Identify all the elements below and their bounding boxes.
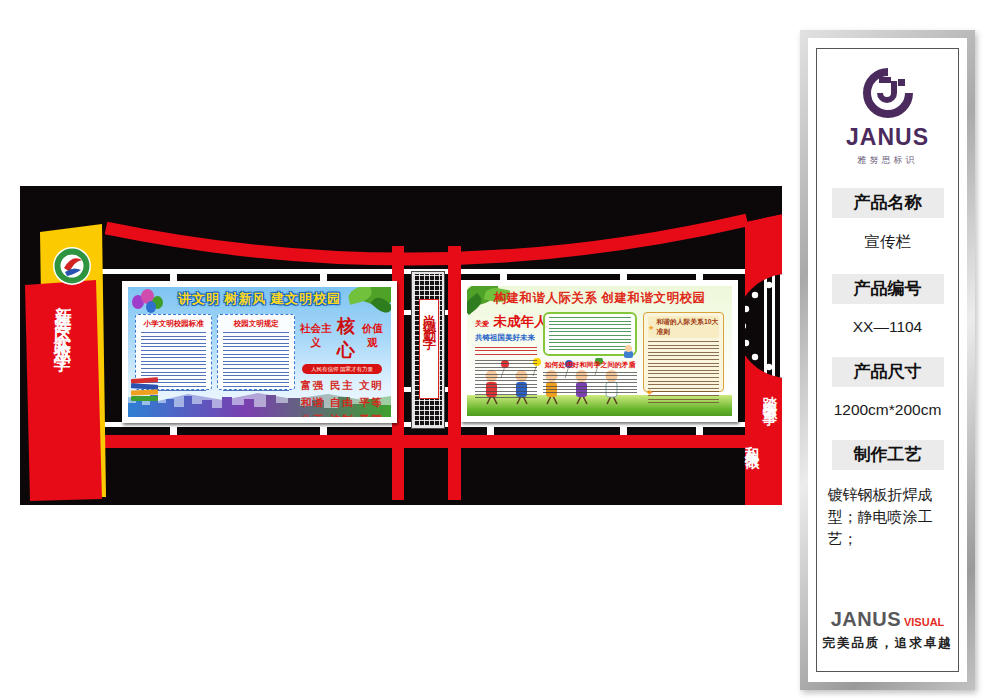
brand-tagline: 雅努思标识 <box>858 154 918 167</box>
fine-print-lines <box>475 347 537 356</box>
rules-box: ★ 和谐的人际关系10大准则 <box>643 312 724 392</box>
values-row: 和谐 自由 平等 <box>300 394 384 411</box>
star-icon: ★ <box>648 324 654 331</box>
product-code-value: XX—1104 <box>853 318 923 336</box>
motto-right-col1: 踏实做事 <box>760 384 779 404</box>
standards-panel-title: 小学文明校园标准 <box>139 319 208 329</box>
left-poster: 讲文明 树新风 建文明校园 小学文明校园标准 校园文明规定 社会主义 核心 价值… <box>128 287 391 417</box>
right-post <box>448 246 461 500</box>
process-value: 镀锌钢板折焊成型；静电喷涂工艺； <box>828 484 948 549</box>
values-core: 核心 <box>332 314 359 362</box>
spec-panel-frame: JANUS 雅努思标识 产品名称 宣传栏 产品编号 XX—1104 产品尺寸 1… <box>800 30 975 690</box>
billboard-design-canvas: 新连云区实验小学 踏实做事 和美做 尚德勤学 讲文明 树新风 建文明校园 <box>20 186 782 505</box>
process-label: 制作工艺 <box>832 440 944 470</box>
school-name-banner: 新连云区实验小学 <box>48 292 75 502</box>
school-emblem-icon <box>53 247 91 285</box>
fine-print-lines <box>648 341 719 403</box>
virtue-plaque: 尚德勤学 <box>419 299 439 399</box>
left-display-board: 讲文明 树新风 建文明校园 小学文明校园标准 校园文明规定 社会主义 核心 价值… <box>122 281 397 423</box>
product-size-value: 1200cm*200cm <box>834 401 942 419</box>
values-suffix: 价值观 <box>360 322 384 350</box>
lattice-column: 尚德勤学 <box>412 272 444 428</box>
product-name-label: 产品名称 <box>832 188 944 218</box>
fine-print-lines <box>543 372 637 394</box>
care-prefix: 关爱 <box>475 320 489 327</box>
product-size-label: 产品尺寸 <box>832 357 944 387</box>
spec-footer: JANUSVISUAL 完美品质，追求卓越 <box>808 608 967 652</box>
values-prefix: 社会主义 <box>300 322 332 350</box>
right-column <box>736 214 782 505</box>
brand-name: JANUS <box>846 124 929 151</box>
books-stack-icon <box>131 377 158 401</box>
top-swag-band <box>106 220 747 259</box>
base-bar <box>75 435 765 448</box>
care-title: 未成年人 <box>493 313 547 329</box>
footer-brand-accent: VISUAL <box>904 616 944 628</box>
right-poster: 构建和谐人际关系 创建和谐文明校园 关爱 未成年人 共铸祖国美好未来 <box>467 286 732 416</box>
right-poster-title: 构建和谐人际关系 创建和谐文明校园 <box>467 290 732 307</box>
fan-stripes <box>762 272 782 382</box>
values-row: 富强 民主 文明 <box>300 377 384 394</box>
virtue-plaque-text: 尚德勤学 <box>420 304 438 332</box>
fine-print-lines <box>475 360 537 398</box>
green-list-box <box>543 312 637 356</box>
core-values-block: 社会主义 核心 价值观 人民有信仰 国家才有力量 富强 民主 文明 和谐 自由 … <box>300 314 384 390</box>
janus-logo-icon <box>861 66 915 120</box>
fine-print-lines <box>223 332 288 392</box>
care-subtitle: 共铸祖国美好未来 <box>475 333 537 343</box>
footer-brand: JANUS <box>831 608 901 630</box>
left-poster-title: 讲文明 树新风 建文明校园 <box>128 290 391 308</box>
classmates-block: 如何处理好和同学之间的矛盾 <box>543 312 637 392</box>
rules-panel: 校园文明规定 <box>217 314 294 390</box>
motto-right-col2: 和美做 <box>742 434 761 449</box>
spec-panel-card: JANUS 雅努思标识 产品名称 宣传栏 产品编号 XX—1104 产品尺寸 1… <box>808 38 967 682</box>
rules-panel-title: 校园文明规定 <box>221 319 290 329</box>
product-code-label: 产品编号 <box>832 274 944 304</box>
values-row: 公正 法制 爱国 <box>300 411 384 417</box>
star-icon: ✦ <box>646 387 654 398</box>
fine-print-lines <box>549 317 631 351</box>
right-display-board: 构建和谐人际关系 创建和谐文明校园 关爱 未成年人 共铸祖国美好未来 <box>461 280 738 422</box>
cartoon-kid-icon <box>624 351 633 358</box>
care-minors-block: 关爱 未成年人 共铸祖国美好未来 <box>475 312 537 392</box>
rules-heading: 和谐的人际关系10大准则 <box>656 317 719 337</box>
product-name-value: 宣传栏 <box>864 232 911 253</box>
balloons-icon <box>132 289 166 315</box>
values-banner: 人民有信仰 国家才有力量 <box>302 364 382 374</box>
footer-slogan: 完美品质，追求卓越 <box>808 635 967 652</box>
mid-heading: 如何处理好和同学之间的矛盾 <box>543 360 637 370</box>
